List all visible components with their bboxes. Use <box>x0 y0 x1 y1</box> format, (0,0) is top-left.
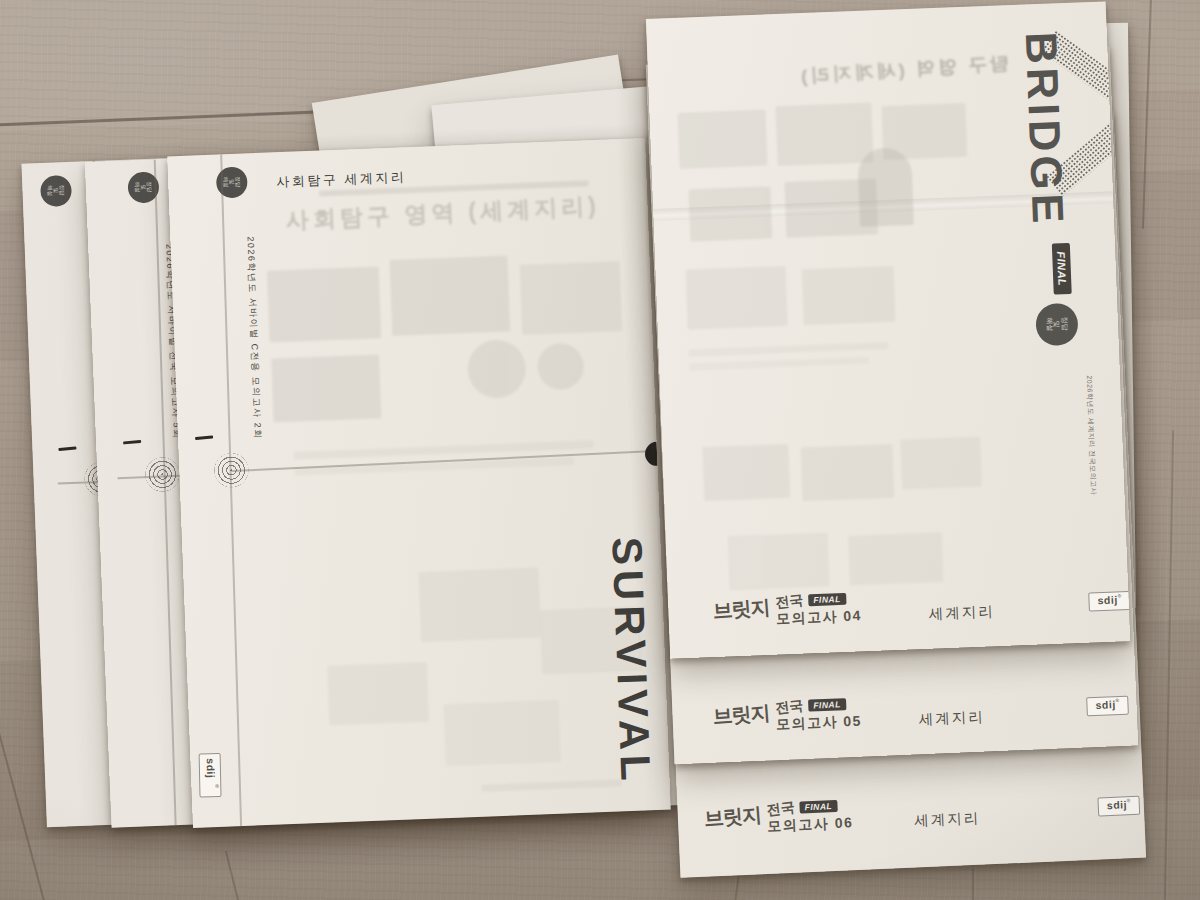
badge-line: 해설 <box>134 182 140 193</box>
bridge-footer: 브릿지 전국 FINAL 모의고사 04 <box>712 591 862 628</box>
photo-of-exam-papers: 정답 및 해설 사 2026학년도 서바이벌 전국 모의고사 6회 정답 및 해… <box>0 0 1200 900</box>
publisher-logo-text: sdij <box>203 758 218 778</box>
series-side-title: SURVIVAL <box>602 536 660 786</box>
ghost-print-thumbnail <box>686 266 788 330</box>
publisher-logo: sdij ® <box>1088 591 1130 612</box>
publisher-logo-text: sdij <box>1095 697 1116 713</box>
ghost-print-thumbnail <box>848 532 944 586</box>
print-mark <box>123 440 141 445</box>
badge-line: 및 <box>229 180 235 186</box>
ghost-print-circle <box>467 339 527 399</box>
bridge-footer: 브릿지 전국 FINAL 모의고사 06 <box>703 798 853 835</box>
ghost-print-circle <box>537 343 585 391</box>
badge-line: 정답 <box>235 177 241 188</box>
print-mark <box>195 435 213 440</box>
ghost-print-thumbnail <box>702 444 790 501</box>
ghost-print-thumbnail <box>327 662 429 726</box>
final-badge: FINAL <box>808 698 846 712</box>
publisher-logo-text: sdij <box>1097 592 1118 608</box>
badge-line: 해설 <box>1045 318 1053 332</box>
sheet-spine-label: 2026학년도 세계지리 전국모의고사 <box>1084 375 1099 495</box>
floor-seam <box>1142 0 1152 229</box>
fold-crease <box>220 154 241 826</box>
publisher-logo: sdij ® <box>1097 796 1140 817</box>
ghost-print-thumbnail <box>678 110 768 169</box>
answer-badge: 정답 및 해설 <box>1035 303 1079 347</box>
final-badge: FINAL <box>799 800 837 814</box>
registered-mark: ® <box>1117 592 1121 599</box>
badge-line: 정답 <box>59 185 65 196</box>
badge-line: 정답 <box>1060 317 1068 331</box>
ghost-print-thumbnail <box>802 266 896 325</box>
sheet-spine-label: 2026학년도 서바이벌 C전용 모의고사 2회 <box>243 236 264 440</box>
floor-seam <box>0 718 48 900</box>
ghost-print-thumbnail <box>271 354 381 422</box>
ghost-print-thumbnail <box>800 444 894 501</box>
badge-line: 해설 <box>223 177 229 188</box>
subject-label: 세계지리 <box>919 707 986 729</box>
publisher-logo-text: sdij <box>1107 797 1128 813</box>
series-logo-korean: 브릿지 <box>703 801 762 832</box>
floor-seam <box>225 851 241 900</box>
registration-target <box>145 457 180 492</box>
ghost-print-line <box>294 440 594 460</box>
bridge-footer: 브릿지 전국 FINAL 모의고사 05 <box>712 697 862 734</box>
final-badge: FINAL <box>1053 243 1073 295</box>
badge-line: 및 <box>1053 321 1061 328</box>
exam-title: 모의고사 06 <box>767 815 853 833</box>
ghost-print-thumbnail <box>728 532 830 590</box>
ghost-print-thumbnail <box>418 567 541 642</box>
registration-target <box>214 453 249 488</box>
publisher-logo: sdij ® <box>199 753 222 797</box>
edge-index-mark <box>645 442 658 466</box>
badge-line: 정답 <box>146 182 152 193</box>
ghost-print-line <box>689 342 889 357</box>
registered-mark: ® <box>1127 797 1131 804</box>
ghost-print-line <box>482 779 622 791</box>
series-logo-korean: 브릿지 <box>712 594 771 625</box>
ghost-print-title-mirrored: 탐구 영역 (세계지리) <box>797 50 1009 90</box>
ghost-print-building <box>857 147 914 227</box>
badge-line: 및 <box>53 188 59 194</box>
ghost-print-thumbnail <box>520 261 623 335</box>
floor-seam <box>972 868 974 900</box>
ghost-print-thumbnail <box>267 266 382 342</box>
ghost-print-thumbnail <box>444 700 561 766</box>
final-badge-text: FINAL <box>1052 243 1072 295</box>
subject-label: 세계지리 <box>929 602 996 624</box>
series-logo-korean: 브릿지 <box>712 699 771 730</box>
ghost-print-thumbnail <box>775 102 873 166</box>
ghost-print-title: 사회탐구 영역 (세계지리) <box>285 191 600 237</box>
bridge-sheet-04: 탐구 영역 (세계지리) BRIDGE FINAL 정답 및 해설 <box>646 1 1130 658</box>
ghost-print-thumbnail <box>688 186 772 241</box>
ghost-print-thumbnail <box>900 437 982 490</box>
badge-line: 및 <box>140 185 146 191</box>
publisher-logo: sdij ® <box>1086 696 1129 717</box>
region-label: 전국 <box>775 698 804 715</box>
ghost-print-thumbnail <box>389 255 510 335</box>
exam-title: 모의고사 05 <box>776 714 862 732</box>
final-badge: FINAL <box>808 593 846 607</box>
exam-title: 모의고사 04 <box>776 608 862 625</box>
answer-badge: 정답 및 해설 <box>40 175 72 207</box>
subject-label: 세계지리 <box>914 809 981 831</box>
region-label: 전국 <box>775 593 804 610</box>
registered-mark: ® <box>213 784 220 788</box>
badge-line: 해설 <box>47 186 53 197</box>
ghost-print-line <box>689 357 869 371</box>
registered-mark: ® <box>1115 697 1119 704</box>
print-mark <box>58 446 76 451</box>
answer-sheet-survival-2: 정답 및 해설 사회탐구 세계지리 사회탐구 영역 (세계지리) 2026학년도… <box>167 138 670 828</box>
region-label: 전국 <box>766 800 795 817</box>
floor-seam <box>1164 430 1174 900</box>
